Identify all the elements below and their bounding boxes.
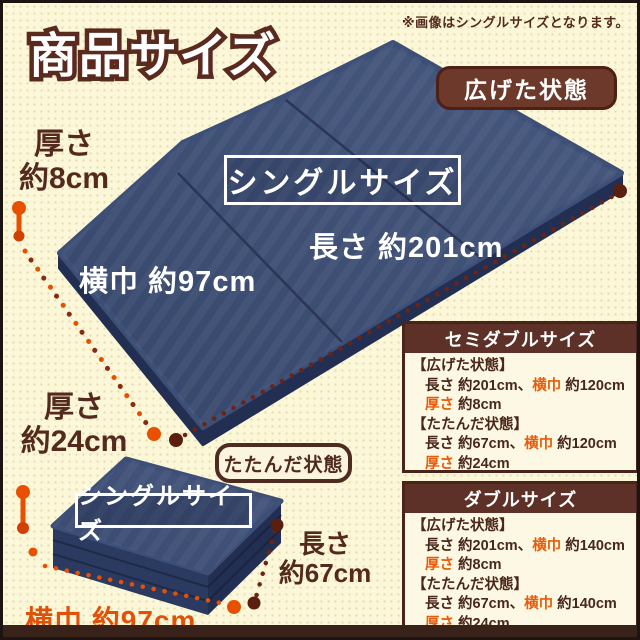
double-folded-header: 【たたんだ状態】 xyxy=(412,576,629,596)
open-thickness-line2: 約8cm xyxy=(19,162,109,195)
semi-double-size-title: セミダブルサイズ xyxy=(405,324,636,353)
open-state-badge: 広げた状態 xyxy=(436,66,617,110)
folded-thickness-line2: 約24cm xyxy=(21,425,128,458)
product-size-infographic: 商品サイズ 商品サイズ ※画像はシングルサイズとなります。 広げた状態 たたんだ… xyxy=(0,0,640,640)
folded-length-line2: 約67cm xyxy=(279,558,372,588)
double-open-length: 長さ 約201cm、 xyxy=(425,538,532,554)
semi-double-open-thick-label: 厚さ xyxy=(425,397,454,413)
double-open-thick-label: 厚さ xyxy=(425,557,454,573)
folded-length-line1: 長さ xyxy=(299,529,351,559)
semi-double-size-box: セミダブルサイズ 【広げた状態】 長さ 約201cm、横巾 約120cm 厚さ … xyxy=(402,321,639,473)
folded-thickness-line1: 厚さ xyxy=(44,391,104,424)
double-open-width-value: 約140cm xyxy=(561,538,625,554)
thickness-24cm-measure-icon xyxy=(16,485,38,557)
bottom-section-divider xyxy=(3,625,637,637)
double-open-thickness: 厚さ 約8cm xyxy=(412,556,629,576)
semi-double-folded-width-value: 約120cm xyxy=(553,436,617,452)
semi-double-folded-length: 長さ 約67cm、 xyxy=(425,436,524,452)
double-size-box: ダブルサイズ 【広げた状態】 長さ 約201cm、横巾 約140cm 厚さ 約8… xyxy=(402,481,639,628)
page-title: 商品サイズ xyxy=(29,16,278,86)
semi-double-open-thick-value: 約8cm xyxy=(454,397,502,413)
open-width-label: 横巾 約97cm xyxy=(79,258,256,300)
single-size-label-folded: シングルサイズ xyxy=(75,493,252,528)
single-size-label-open: シングルサイズ xyxy=(224,155,461,205)
double-open-header: 【広げた状態】 xyxy=(412,517,629,537)
image-size-note: ※画像はシングルサイズとなります。 xyxy=(402,12,629,31)
semi-double-open-thickness: 厚さ 約8cm xyxy=(412,396,629,416)
double-folded-dimensions: 長さ 約67cm、横巾 約140cm xyxy=(412,595,629,615)
double-open-dimensions: 長さ 約201cm、横巾 約140cm xyxy=(412,537,629,557)
folded-thickness-label: 厚さ 約24cm xyxy=(7,391,141,458)
double-size-title: ダブルサイズ xyxy=(405,484,636,513)
semi-double-open-dimensions: 長さ 約201cm、横巾 約120cm xyxy=(412,377,629,397)
folded-length-label: 長さ 約67cm xyxy=(269,530,381,588)
semi-double-folded-header: 【たたんだ状態】 xyxy=(412,416,629,436)
semi-double-open-width-label: 横巾 xyxy=(532,378,561,394)
semi-double-folded-thickness: 厚さ 約24cm xyxy=(412,455,629,475)
double-open-thick-value: 約8cm xyxy=(454,557,502,573)
semi-double-folded-thick-label: 厚さ xyxy=(425,456,454,472)
semi-double-open-width-value: 約120cm xyxy=(561,378,625,394)
double-folded-length: 長さ 約67cm、 xyxy=(425,596,524,612)
open-thickness-line1: 厚さ xyxy=(34,128,94,161)
double-folded-width-value: 約140cm xyxy=(553,596,617,612)
double-folded-width-label: 横巾 xyxy=(524,596,553,612)
open-length-label: 長さ 約201cm xyxy=(309,224,503,266)
semi-double-folded-dimensions: 長さ 約67cm、横巾 約120cm xyxy=(412,435,629,455)
semi-double-open-length: 長さ 約201cm、 xyxy=(425,378,532,394)
semi-double-folded-thick-value: 約24cm xyxy=(454,456,510,472)
semi-double-open-header: 【広げた状態】 xyxy=(412,357,629,377)
thickness-8cm-measure-icon xyxy=(12,201,26,242)
semi-double-folded-width-label: 横巾 xyxy=(524,436,553,452)
open-thickness-label: 厚さ 約8cm xyxy=(5,128,123,195)
double-open-width-label: 横巾 xyxy=(532,538,561,554)
